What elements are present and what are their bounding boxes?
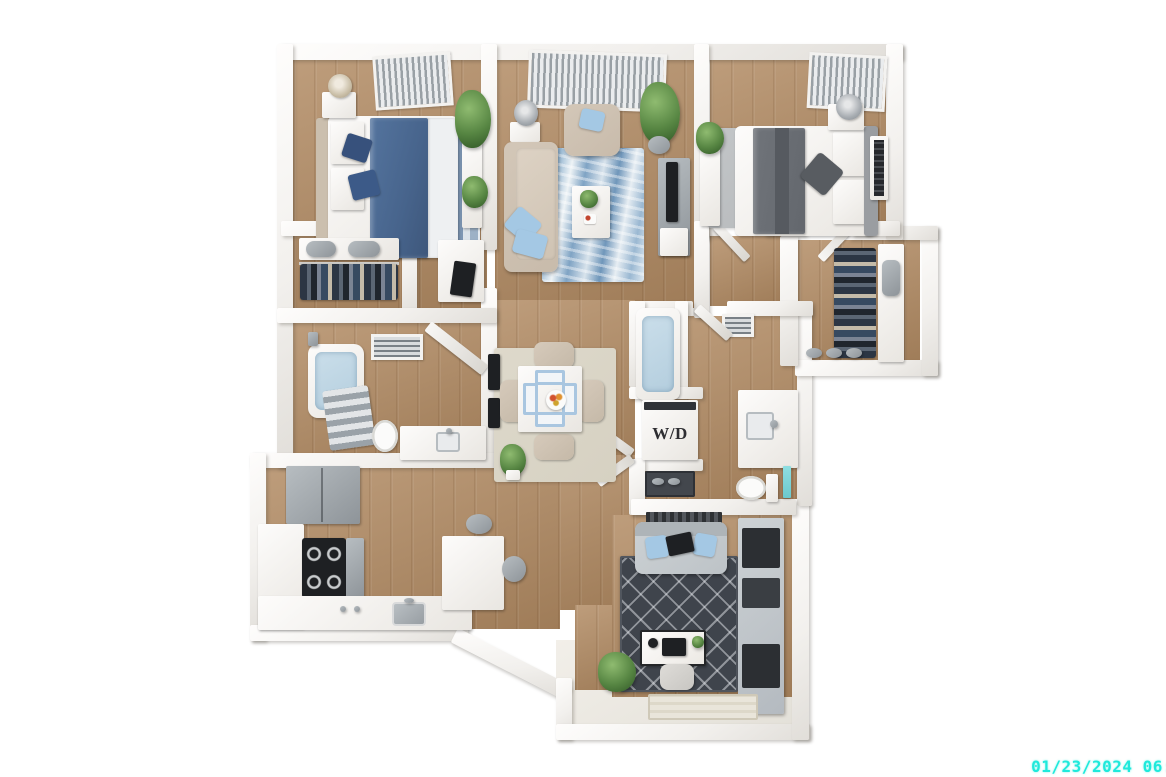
den-storage-slot-1 bbox=[742, 528, 780, 568]
bedroom1-plant-small bbox=[462, 176, 488, 208]
dining-chair-top bbox=[534, 342, 574, 368]
den-laptop bbox=[662, 638, 686, 656]
bathroom1-vent bbox=[371, 334, 423, 360]
faucet2 bbox=[770, 420, 778, 428]
wall-closet2-right bbox=[922, 226, 938, 376]
walkin-shoe-3 bbox=[846, 348, 862, 358]
den-desk-chair bbox=[660, 664, 694, 690]
dining-wall-art-2 bbox=[488, 398, 500, 428]
bed2-pillow-2 bbox=[833, 180, 867, 224]
den-desk-plant bbox=[692, 636, 704, 648]
entry-doormat bbox=[648, 694, 758, 720]
bathtub2-water bbox=[642, 316, 674, 392]
wall-corridor-left bbox=[694, 221, 709, 318]
wall-bed1-living-upper bbox=[481, 44, 497, 250]
dining-wall-art-1 bbox=[488, 354, 500, 390]
wall-bath1-top bbox=[277, 308, 497, 323]
walkin-hanging-clothes bbox=[834, 248, 876, 358]
hall-closet-slipper-2 bbox=[668, 478, 680, 485]
dining-chair-bottom bbox=[534, 434, 574, 460]
living-plant bbox=[640, 82, 680, 144]
bedroom1-lamp bbox=[328, 74, 352, 98]
den-storage-slot-3 bbox=[742, 644, 780, 688]
bed1-sheet-foot bbox=[428, 118, 458, 258]
bedroom1-ceiling-vent bbox=[372, 51, 454, 110]
wall-diagonal-entry bbox=[451, 628, 572, 700]
kitchen-counter-item-2 bbox=[354, 606, 360, 612]
kitchen-sink bbox=[392, 602, 426, 626]
wall-closet2-bottom bbox=[795, 360, 938, 376]
dining-plant-pot bbox=[506, 470, 520, 480]
bar-stool-1 bbox=[466, 514, 492, 534]
toilet2 bbox=[736, 476, 766, 500]
bedroom2-plant bbox=[696, 122, 724, 154]
placemat-left bbox=[523, 383, 538, 415]
den-desk-item bbox=[648, 638, 658, 648]
oven-door bbox=[346, 538, 364, 598]
towel-rack1 bbox=[322, 385, 376, 451]
bed2-duvet-fold bbox=[775, 128, 789, 234]
walkin-shoe-1 bbox=[806, 348, 822, 358]
wall-bottom-outer bbox=[556, 724, 810, 740]
washer-dryer-label: W/D bbox=[642, 408, 698, 460]
closet1-hanging-clothes bbox=[300, 264, 398, 300]
corridor-floor bbox=[710, 236, 784, 306]
bathroom2-mirror bbox=[783, 466, 791, 498]
toilet2-tank bbox=[766, 474, 778, 502]
refrigerator-door-split bbox=[321, 468, 323, 522]
wall-left-outer bbox=[277, 44, 293, 468]
kitchen-counter-item-1 bbox=[340, 606, 346, 612]
placemat-bottom bbox=[535, 412, 565, 427]
floor-plan-render: W/D 01/23/2024 06: bbox=[0, 0, 1166, 777]
timestamp-overlay: 01/23/2024 06: bbox=[1031, 757, 1166, 776]
coffee-table-plant bbox=[580, 190, 598, 208]
tv-console-shelf bbox=[660, 228, 688, 256]
placemat-top bbox=[535, 370, 565, 385]
fruit-bowl bbox=[546, 390, 566, 410]
kitchen-faucet bbox=[404, 598, 414, 603]
sink1 bbox=[436, 432, 460, 452]
wall-den-right-outer bbox=[792, 499, 809, 740]
bedroom2-dresser bbox=[700, 148, 720, 226]
shower1-head bbox=[308, 332, 318, 346]
den-storage-slot-2 bbox=[742, 578, 780, 608]
bedroom1-tv bbox=[450, 261, 477, 298]
faucet1 bbox=[446, 428, 452, 434]
den-pillow-2 bbox=[692, 532, 717, 557]
bedroom2-lamp bbox=[836, 94, 862, 120]
coffee-table-decor bbox=[584, 214, 596, 224]
wall-bed2-right-outer bbox=[886, 44, 903, 240]
living-plant-pot bbox=[648, 136, 670, 154]
stove-cooktop bbox=[302, 538, 346, 598]
living-tv bbox=[666, 162, 678, 222]
walkin-shoe-2 bbox=[826, 348, 842, 358]
hall-closet-slipper-1 bbox=[652, 478, 664, 485]
refrigerator bbox=[286, 466, 360, 524]
walkin-vacuum bbox=[882, 260, 900, 296]
living-table-lamp bbox=[514, 100, 538, 126]
toilet1 bbox=[372, 420, 398, 452]
bar-stool-2 bbox=[502, 556, 526, 582]
closet1-bin-1 bbox=[306, 241, 336, 257]
kitchen-island bbox=[442, 536, 504, 610]
bedroom1-plant-large bbox=[455, 90, 491, 148]
bedroom2-wall-art bbox=[874, 140, 884, 196]
entry-plant bbox=[598, 652, 636, 692]
wall-bath2-right bbox=[797, 306, 812, 506]
closet1-bin-2 bbox=[348, 241, 380, 257]
kitchen-counter-bottom bbox=[258, 596, 472, 630]
